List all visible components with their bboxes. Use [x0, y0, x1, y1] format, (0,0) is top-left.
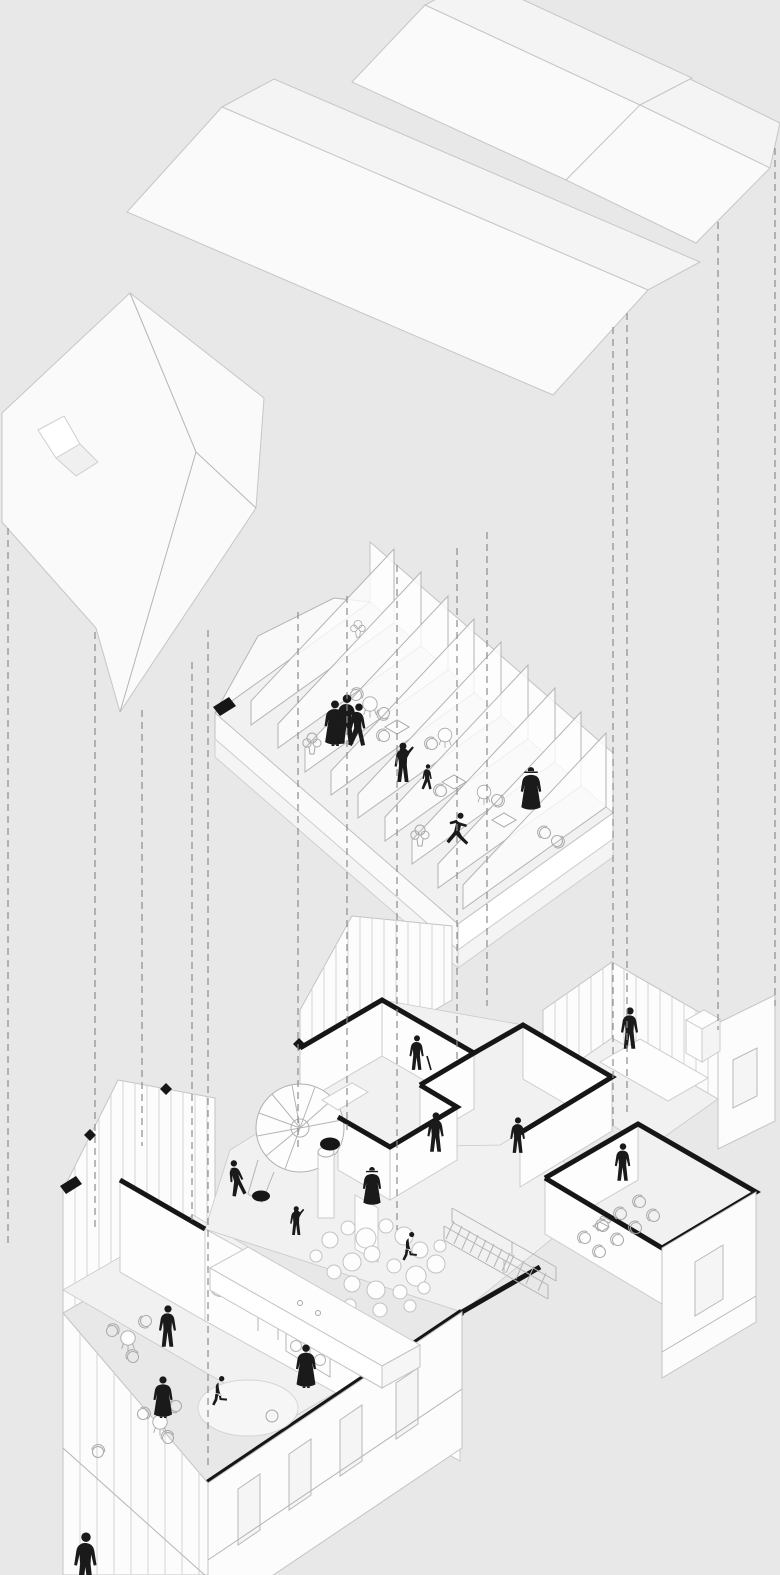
pouf [327, 1265, 341, 1279]
pouf [393, 1285, 407, 1299]
black-pouf [252, 1191, 270, 1202]
roof-plane-southwest [2, 293, 264, 712]
pouf [434, 1240, 446, 1252]
exploded-axonometric-diagram [0, 0, 780, 1575]
pouf [344, 1276, 360, 1292]
pouf [379, 1219, 393, 1233]
pouf [310, 1250, 322, 1262]
ground-floor-level [60, 916, 775, 1575]
pouf [356, 1228, 376, 1248]
pouf [387, 1259, 401, 1273]
cafe-chair [124, 1347, 142, 1365]
diagram-canvas [0, 0, 780, 1575]
pouf [322, 1232, 338, 1248]
upper-floor-level [213, 542, 613, 968]
pouf [373, 1303, 387, 1317]
round-rug [198, 1380, 298, 1436]
pouf [367, 1281, 385, 1299]
column [318, 1152, 334, 1218]
pouf [343, 1253, 361, 1271]
pouf [404, 1300, 416, 1312]
figure-coat-standing [153, 1376, 172, 1418]
pouf [364, 1246, 380, 1262]
pouf [427, 1255, 445, 1273]
pouf [341, 1221, 355, 1235]
black-pouf [320, 1138, 340, 1151]
cafe-chair [103, 1321, 121, 1339]
cafe-table [121, 1331, 135, 1352]
pouf [418, 1282, 430, 1294]
